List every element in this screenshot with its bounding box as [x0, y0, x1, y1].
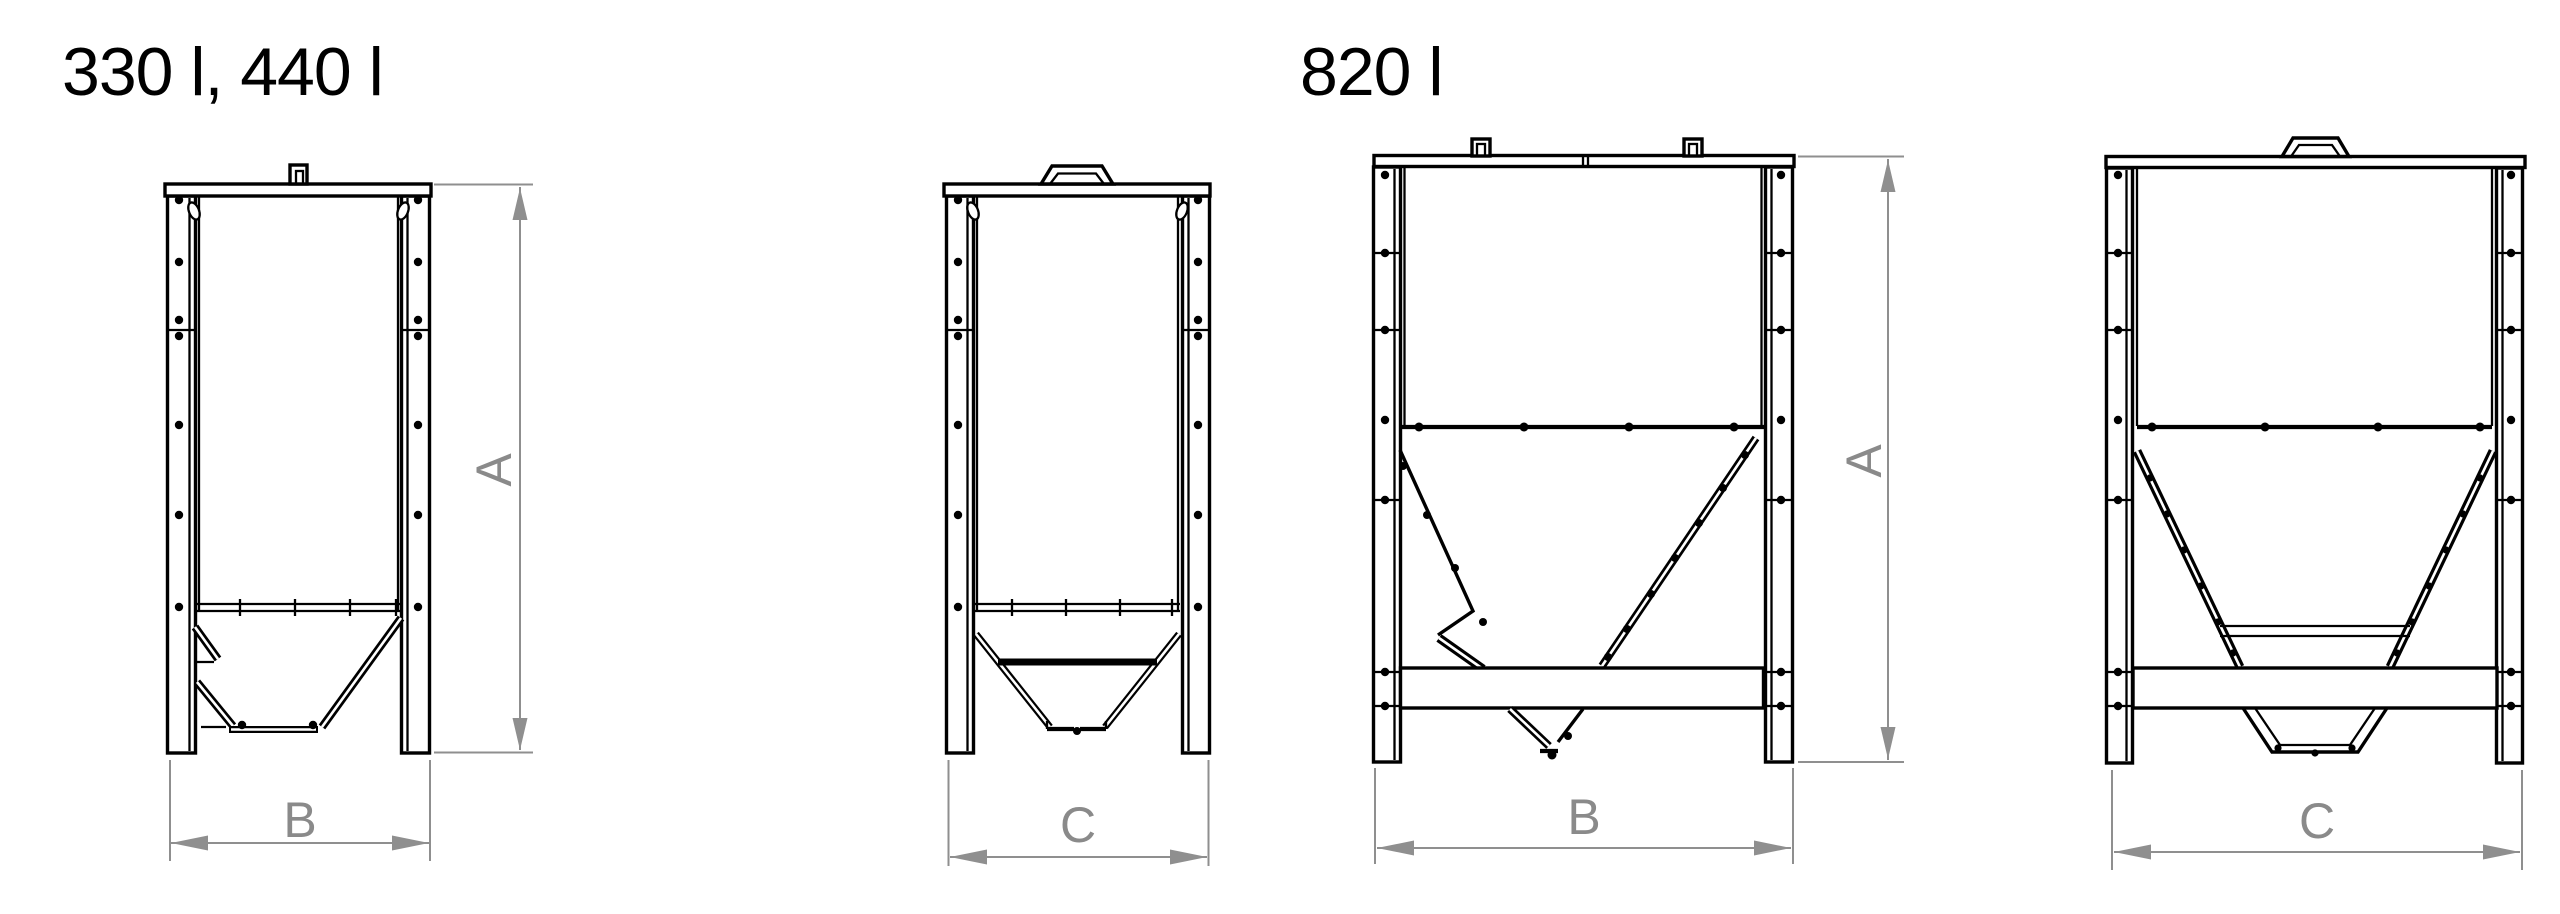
silo-330-440-side-view: C — [944, 166, 1210, 866]
dimension-depth-C: C — [949, 760, 1209, 866]
dimension-label-height: A — [1836, 444, 1892, 478]
hopper-rail — [975, 599, 1180, 616]
dimension-label-height: A — [466, 453, 522, 487]
hopper-rail — [1402, 423, 1764, 432]
hopper — [195, 618, 401, 730]
lid-handle-edge-right — [1684, 139, 1702, 156]
silo-drawings: A B — [0, 0, 2560, 914]
silo-330-440-front-view: A B — [165, 165, 533, 861]
container-walls — [2137, 168, 2492, 426]
lid — [2106, 138, 2525, 168]
hopper-rail — [2137, 423, 2492, 432]
container-walls — [965, 196, 1190, 611]
silo-820-front-view: B A — [1374, 139, 1905, 864]
dimension-width-B: B — [170, 760, 430, 861]
hopper — [976, 634, 1179, 735]
lid-handle-edge — [290, 165, 307, 184]
dimension-height-A: A — [434, 185, 533, 753]
dimension-label-width: B — [1567, 789, 1600, 845]
lid — [1374, 139, 1794, 167]
rivet-dots — [175, 196, 422, 611]
rivet-dots — [2114, 171, 2515, 710]
hopper — [1399, 438, 1756, 669]
crossbar-beam — [2133, 668, 2497, 708]
hopper — [2137, 451, 2493, 667]
dimension-depth-C: C — [2112, 770, 2522, 870]
silo-820-side-view: C — [2106, 138, 2525, 870]
legs — [168, 196, 430, 753]
rivet-dots — [1381, 171, 1785, 710]
lid — [944, 166, 1210, 196]
crossbar-beam — [1401, 668, 1764, 708]
lid-handle-edge-left — [1472, 139, 1490, 156]
container-walls — [1405, 167, 1762, 426]
hopper-rail — [196, 599, 402, 616]
dimension-width-B: B — [1375, 768, 1793, 864]
container-walls — [186, 196, 411, 611]
hopper-outlet — [2243, 708, 2387, 757]
dimension-label-width: B — [283, 792, 316, 848]
dimension-label-depth: C — [1060, 797, 1096, 853]
hopper-outlet-tip — [1510, 709, 1583, 760]
lid — [165, 165, 431, 196]
legs — [947, 196, 1210, 753]
technical-drawing-sheet: 330 l, 440 l 820 l — [0, 0, 2560, 914]
dimension-height-A: A — [1798, 157, 1904, 763]
rivet-dots — [954, 196, 1202, 611]
dimension-label-depth: C — [2299, 793, 2335, 849]
left-slope-kinked — [1400, 450, 1473, 635]
